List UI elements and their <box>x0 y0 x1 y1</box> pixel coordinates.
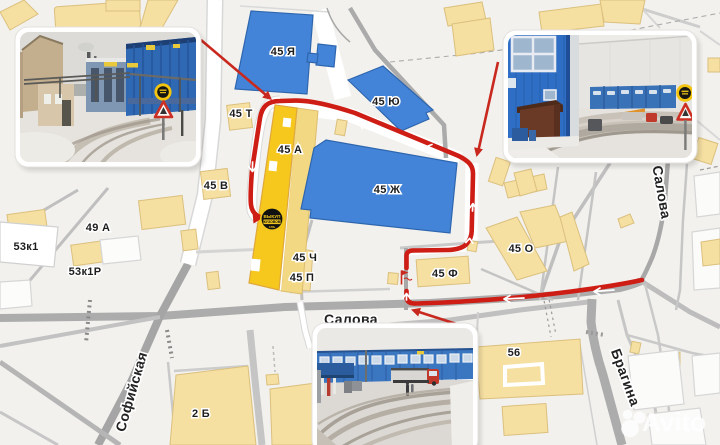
svg-text:45 Ф: 45 Ф <box>432 268 458 280</box>
svg-text:Avito: Avito <box>642 407 706 437</box>
svg-text:53к1: 53к1 <box>13 241 38 253</box>
svg-text:45 Я: 45 Я <box>271 46 295 58</box>
svg-text:45 П: 45 П <box>290 272 314 284</box>
svg-text:ВЫКУП: ВЫКУП <box>264 214 281 219</box>
svg-text:КУЗОВОВ: КУЗОВОВ <box>264 220 281 224</box>
svg-text:45 А: 45 А <box>278 144 302 156</box>
svg-text:45 Т: 45 Т <box>229 108 252 120</box>
svg-text:49 А: 49 А <box>86 222 110 234</box>
svg-text:45 Ч: 45 Ч <box>293 252 317 264</box>
svg-text:45 В: 45 В <box>204 180 228 192</box>
svg-text:56: 56 <box>508 347 521 359</box>
svg-text:45 О: 45 О <box>508 243 533 255</box>
svg-text:2 Б: 2 Б <box>192 408 210 420</box>
svg-text:СПБ: СПБ <box>269 225 276 229</box>
svg-text:45 Ж: 45 Ж <box>374 184 400 196</box>
svg-text:53к1Р: 53к1Р <box>69 266 102 278</box>
svg-text:45 Ю: 45 Ю <box>372 96 400 108</box>
